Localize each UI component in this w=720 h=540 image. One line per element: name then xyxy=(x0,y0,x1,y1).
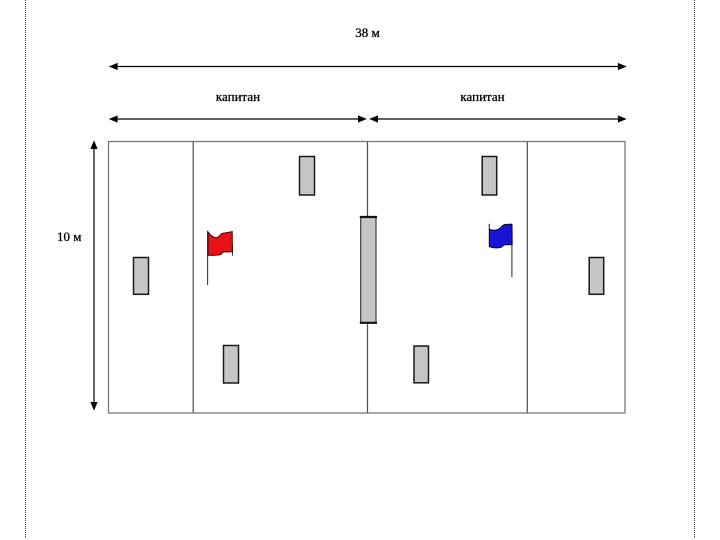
svg-text:капитан: капитан xyxy=(216,89,260,104)
svg-text:капитан: капитан xyxy=(460,89,504,104)
svg-text:10 м: 10 м xyxy=(57,229,81,244)
svg-text:38 м: 38 м xyxy=(355,25,379,40)
